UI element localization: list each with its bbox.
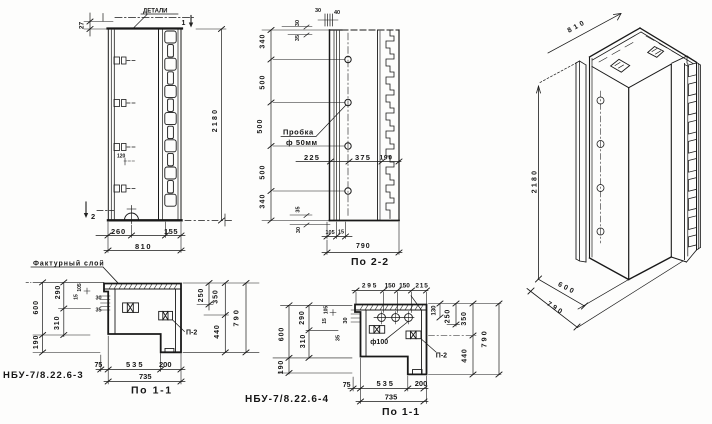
svg-text:500: 500 — [257, 118, 264, 133]
svg-text:105: 105 — [326, 230, 335, 236]
svg-text:295: 295 — [362, 283, 378, 290]
svg-text:375: 375 — [355, 153, 371, 162]
svg-text:190: 190 — [33, 335, 40, 349]
svg-text:ф 50мм: ф 50мм — [286, 138, 318, 147]
svg-text:105: 105 — [77, 283, 83, 292]
svg-text:735: 735 — [139, 372, 152, 381]
svg-text:15: 15 — [338, 230, 344, 236]
svg-text:2180: 2180 — [212, 108, 219, 132]
svg-text:ф100: ф100 — [370, 339, 388, 346]
svg-text:215: 215 — [415, 283, 428, 290]
svg-text:30: 30 — [315, 8, 321, 14]
svg-text:290: 290 — [299, 310, 306, 324]
svg-text:290: 290 — [55, 285, 62, 299]
svg-text:535: 535 — [126, 360, 145, 369]
svg-text:225: 225 — [304, 153, 320, 162]
svg-text:600: 600 — [279, 327, 286, 341]
svg-text:600: 600 — [33, 300, 40, 314]
svg-text:810: 810 — [567, 19, 589, 35]
svg-text:30: 30 — [295, 20, 301, 26]
svg-text:150: 150 — [385, 283, 396, 290]
svg-text:190: 190 — [380, 155, 393, 162]
svg-text:105: 105 — [324, 306, 330, 315]
svg-text:130: 130 — [431, 305, 437, 316]
svg-text:440: 440 — [461, 348, 468, 362]
svg-text:Фактурный слой: Фактурный слой — [33, 260, 105, 268]
svg-text:П-2: П-2 — [186, 330, 197, 337]
svg-text:200: 200 — [415, 379, 428, 388]
svg-text:190: 190 — [278, 360, 285, 374]
svg-text:350: 350 — [461, 311, 468, 325]
svg-text:810: 810 — [135, 242, 152, 251]
svg-text:1: 1 — [182, 20, 186, 27]
svg-text:350: 350 — [213, 289, 220, 303]
svg-text:НБУ-7/8.22.6-4: НБУ-7/8.22.6-4 — [245, 394, 329, 405]
svg-text:250: 250 — [198, 288, 205, 302]
svg-text:155: 155 — [164, 227, 178, 236]
svg-text:35: 35 — [296, 206, 302, 212]
svg-text:310: 310 — [300, 334, 307, 348]
svg-text:250: 250 — [445, 309, 452, 323]
svg-text:НБУ-7/8.22.6-3: НБУ-7/8.22.6-3 — [3, 370, 84, 381]
svg-text:ДЕТАЛИ: ДЕТАЛИ — [143, 9, 168, 15]
svg-text:150: 150 — [399, 283, 410, 290]
svg-text:Пробка: Пробка — [283, 128, 314, 137]
svg-text:790: 790 — [545, 301, 565, 317]
svg-text:2: 2 — [91, 212, 95, 221]
svg-text:340: 340 — [260, 33, 267, 48]
svg-text:310: 310 — [54, 316, 61, 330]
svg-text:535: 535 — [376, 379, 395, 388]
svg-text:15: 15 — [74, 294, 80, 300]
svg-text:120: 120 — [117, 154, 126, 160]
svg-text:35: 35 — [336, 335, 342, 341]
svg-text:75: 75 — [95, 362, 103, 369]
svg-text:200: 200 — [159, 360, 172, 369]
svg-text:По 1-1: По 1-1 — [382, 406, 420, 418]
svg-text:30: 30 — [296, 227, 302, 233]
svg-text:500: 500 — [260, 164, 267, 179]
svg-text:35: 35 — [295, 35, 301, 41]
svg-text:35: 35 — [96, 308, 102, 314]
svg-text:П-2: П-2 — [436, 353, 447, 360]
svg-text:790: 790 — [356, 243, 371, 250]
svg-text:790: 790 — [480, 329, 489, 348]
svg-text:790: 790 — [232, 308, 241, 327]
svg-text:30: 30 — [96, 296, 102, 302]
svg-text:260: 260 — [111, 227, 126, 236]
svg-text:27: 27 — [79, 22, 86, 30]
svg-text:440: 440 — [214, 324, 221, 338]
svg-text:По 2-2: По 2-2 — [351, 256, 389, 268]
svg-text:2180: 2180 — [532, 169, 539, 193]
svg-text:735: 735 — [385, 393, 398, 402]
svg-text:15: 15 — [322, 318, 328, 324]
svg-text:600: 600 — [557, 281, 577, 296]
svg-text:40: 40 — [334, 10, 340, 16]
svg-text:500: 500 — [260, 74, 267, 89]
svg-text:75: 75 — [343, 382, 351, 389]
svg-text:30: 30 — [343, 317, 349, 323]
svg-text:По 1-1: По 1-1 — [131, 385, 173, 397]
svg-text:340: 340 — [260, 193, 267, 208]
